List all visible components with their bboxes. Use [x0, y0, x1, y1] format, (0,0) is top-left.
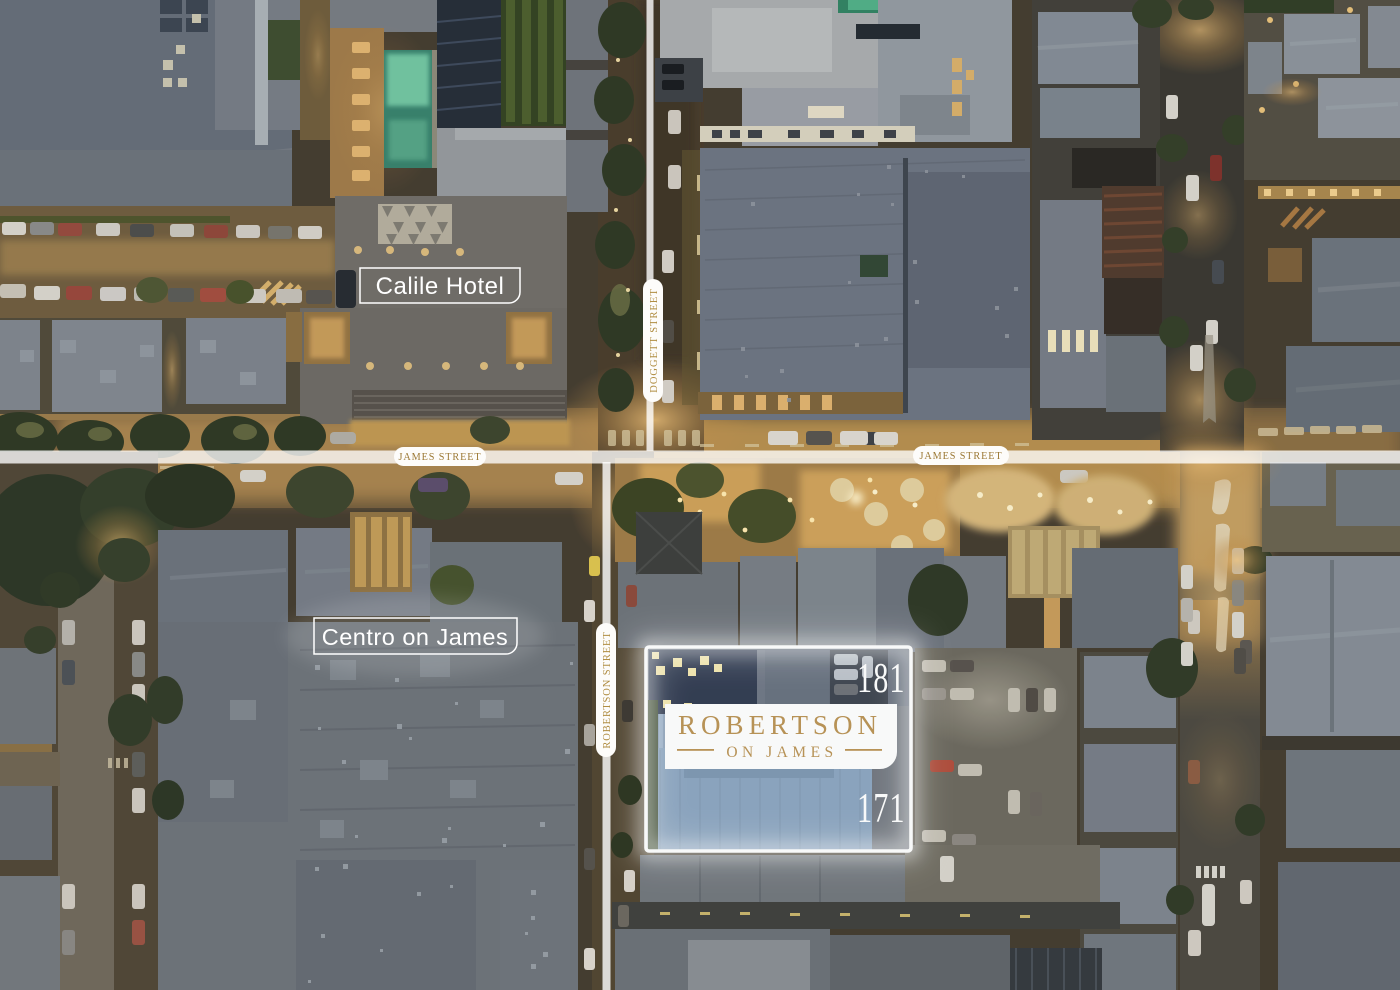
svg-text:JAMES STREET: JAMES STREET — [920, 451, 1003, 462]
svg-text:DOGGETT STREET: DOGGETT STREET — [649, 288, 660, 393]
svg-text:Centro on James: Centro on James — [322, 624, 508, 650]
svg-text:ROBERTSON STREET: ROBERTSON STREET — [602, 631, 613, 748]
svg-text:JAMES STREET: JAMES STREET — [399, 452, 482, 463]
svg-text:Calile Hotel: Calile Hotel — [376, 273, 505, 300]
